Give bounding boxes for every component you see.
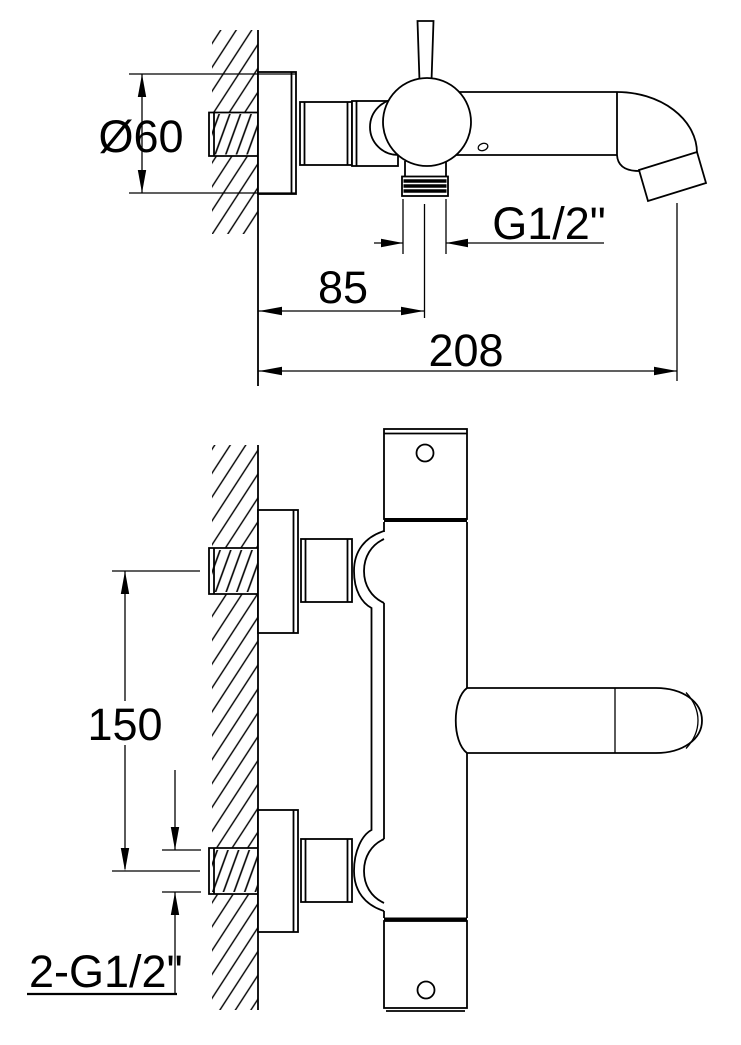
dim-label-spacing: 150 bbox=[87, 699, 162, 750]
dim-label-reach: 208 bbox=[428, 325, 503, 376]
inlet-pipe-top bbox=[209, 548, 258, 594]
spout-pin-hole bbox=[477, 142, 489, 152]
mounting-plate-top bbox=[384, 429, 467, 519]
drawing-canvas: Ø60 G1/2" 85 208 bbox=[0, 0, 741, 1045]
dim-label-offset: 85 bbox=[318, 262, 368, 313]
lower-view-profile: 150 2-G1/2" bbox=[27, 429, 702, 1011]
spout bbox=[456, 92, 706, 201]
wall-hatch-lower bbox=[212, 445, 258, 1010]
connection-nut-upper bbox=[300, 102, 352, 165]
handle-lever-profile bbox=[456, 688, 702, 753]
escutcheon-bottom bbox=[258, 810, 298, 932]
escutcheon-upper bbox=[258, 72, 296, 194]
dim-inlet-threads: 2-G1/2" bbox=[27, 770, 201, 997]
upper-view-side: Ø60 G1/2" 85 208 bbox=[98, 21, 706, 386]
dim-outlet-thread: G1/2" bbox=[374, 198, 606, 318]
dim-outlet-offset: 85 bbox=[258, 262, 424, 315]
connection-nut-bottom bbox=[301, 839, 352, 902]
handle-lever-upper bbox=[418, 21, 434, 81]
dim-label-diameter: Ø60 bbox=[98, 111, 183, 162]
dim-label-outlet-thread: G1/2" bbox=[492, 198, 606, 249]
inlet-pipe-upper bbox=[209, 113, 258, 157]
valve-body-circle bbox=[383, 78, 471, 166]
dim-connection-spacing: 150 bbox=[87, 571, 200, 871]
spout-aerator bbox=[639, 152, 706, 201]
inlet-pipe-bottom bbox=[209, 848, 258, 894]
mounting-plate-bottom bbox=[384, 921, 467, 1008]
dim-label-inlet-threads: 2-G1/2" bbox=[29, 946, 183, 997]
connection-nut-top bbox=[301, 539, 352, 602]
escutcheon-top bbox=[258, 510, 298, 633]
mixer-body bbox=[354, 429, 467, 1011]
technical-drawing: Ø60 G1/2" 85 208 bbox=[0, 0, 741, 1045]
